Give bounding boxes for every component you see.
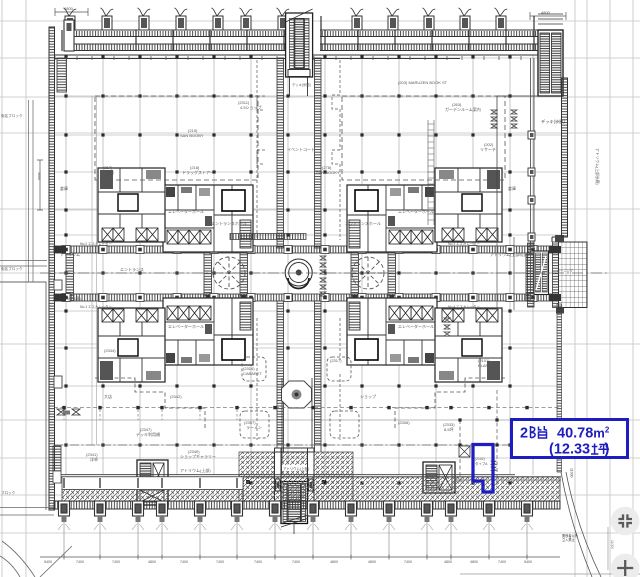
svg-text:エレベーターホール: エレベーターホール [168, 323, 204, 329]
svg-text:No.3 エスカレーター: No.3 エスカレーター [448, 241, 480, 246]
svg-text:ラーメン: ラーメン [246, 424, 262, 430]
svg-text:アトリウム(上部吹抜): アトリウム(上部吹抜) [490, 251, 529, 257]
svg-text:(203) MARUZEN BOOK ST: (203) MARUZEN BOOK ST [398, 80, 448, 85]
svg-text:洋卓: 洋卓 [90, 456, 98, 462]
svg-text:ブロック: ブロック [1, 490, 16, 495]
svg-text:(2306): (2306) [398, 420, 410, 425]
svg-text:4800: 4800 [444, 560, 452, 564]
svg-text:(2344): (2344) [104, 348, 116, 353]
svg-text:ショップギャラリー: ショップギャラリー [180, 453, 216, 459]
svg-text:倉庫: 倉庫 [508, 185, 516, 191]
svg-text:7400: 7400 [498, 560, 506, 564]
svg-text:(2342): (2342) [170, 394, 182, 399]
svg-text:街区ブロック: 街区ブロック [1, 266, 23, 271]
svg-text:ガーデンルーム案内: ガーデンルーム案内 [445, 106, 481, 112]
svg-text:No.2 エスカレーター: No.2 エスカレーター [80, 241, 112, 246]
svg-text:PLANTO: PLANTO [478, 363, 494, 368]
svg-text:アトリウム(上部): アトリウム(上部) [283, 466, 309, 471]
svg-text:3600: 3600 [37, 172, 41, 180]
svg-text:アトリウム(上部歩廊): アトリウム(上部歩廊) [595, 148, 600, 185]
svg-text:エレベーターホール: エレベーターホール [398, 323, 434, 329]
svg-text:7400: 7400 [404, 560, 412, 564]
svg-text:7400: 7400 [112, 560, 120, 564]
svg-text:7400: 7400 [216, 560, 224, 564]
svg-text:No.1 エスカレーター: No.1 エスカレーター [80, 304, 112, 309]
svg-text:エントランスホール: エントランスホール [345, 220, 381, 226]
svg-text:(2102): (2102) [475, 457, 485, 461]
svg-text:8.5坪: 8.5坪 [444, 426, 454, 432]
svg-text:イベントコート: イベントコート [287, 147, 315, 152]
svg-text:エレベーターホール: エレベーターホール [168, 208, 204, 214]
svg-text:7400: 7400 [76, 560, 84, 564]
svg-text:5400: 5400 [44, 560, 52, 564]
svg-text:4800: 4800 [368, 560, 376, 564]
svg-text:雑貨: 雑貨 [106, 169, 114, 175]
svg-text:No.4 エスカレーター: No.4 エスカレーター [448, 304, 480, 309]
svg-text:アトリウム(上部): アトリウム(上部) [180, 467, 211, 473]
svg-text:4800: 4800 [330, 560, 338, 564]
svg-text:SAN BOOBY: SAN BOOBY [180, 133, 204, 138]
svg-text:ショップ: ショップ [360, 393, 376, 399]
svg-text:7400: 7400 [254, 560, 262, 564]
svg-text:7400: 7400 [292, 560, 300, 564]
svg-text:タイプA: タイプA [475, 461, 488, 466]
svg-text:エントランス: エントランス [120, 266, 144, 272]
svg-text:デッキ(歩廊): デッキ(歩廊) [292, 82, 311, 87]
svg-text:デッキ(歩廊): デッキ(歩廊) [541, 118, 565, 125]
svg-text:2: 2 [520, 426, 528, 442]
svg-text:デッキ利用順: デッキ利用順 [136, 431, 160, 437]
svg-text:大店: 大店 [104, 393, 112, 399]
svg-text:(2317): (2317) [330, 358, 342, 363]
svg-text:CABARET: CABARET [243, 371, 262, 376]
svg-text:倉庫: 倉庫 [60, 185, 68, 191]
svg-text:(12.33: (12.33 [549, 442, 590, 458]
svg-text:4800: 4800 [148, 560, 156, 564]
svg-text:11000: 11000 [570, 468, 574, 478]
svg-text:立入禁止: 立入禁止 [562, 537, 576, 542]
svg-text:エントランスホール: エントランスホール [211, 220, 247, 226]
svg-text:SAN BOOKY: SAN BOOKY [316, 170, 340, 175]
svg-text:7400: 7400 [180, 560, 188, 564]
svg-text:オーニング: オーニング [557, 268, 574, 273]
svg-text:4.5ショップ: 4.5ショップ [240, 104, 262, 110]
svg-text:4800: 4800 [470, 560, 478, 564]
svg-text:エレベーターホール: エレベーターホール [398, 208, 434, 214]
svg-text:40.78m2: 40.78m2 [557, 426, 610, 442]
svg-text:リサーチ: リサーチ [480, 147, 496, 152]
svg-text:ドラッグストアー: ドラッグストアー [182, 169, 214, 175]
svg-text:11000: 11000 [610, 540, 614, 549]
svg-text:街区ブロック: 街区ブロック [1, 113, 23, 118]
svg-text:5400: 5400 [524, 560, 532, 564]
